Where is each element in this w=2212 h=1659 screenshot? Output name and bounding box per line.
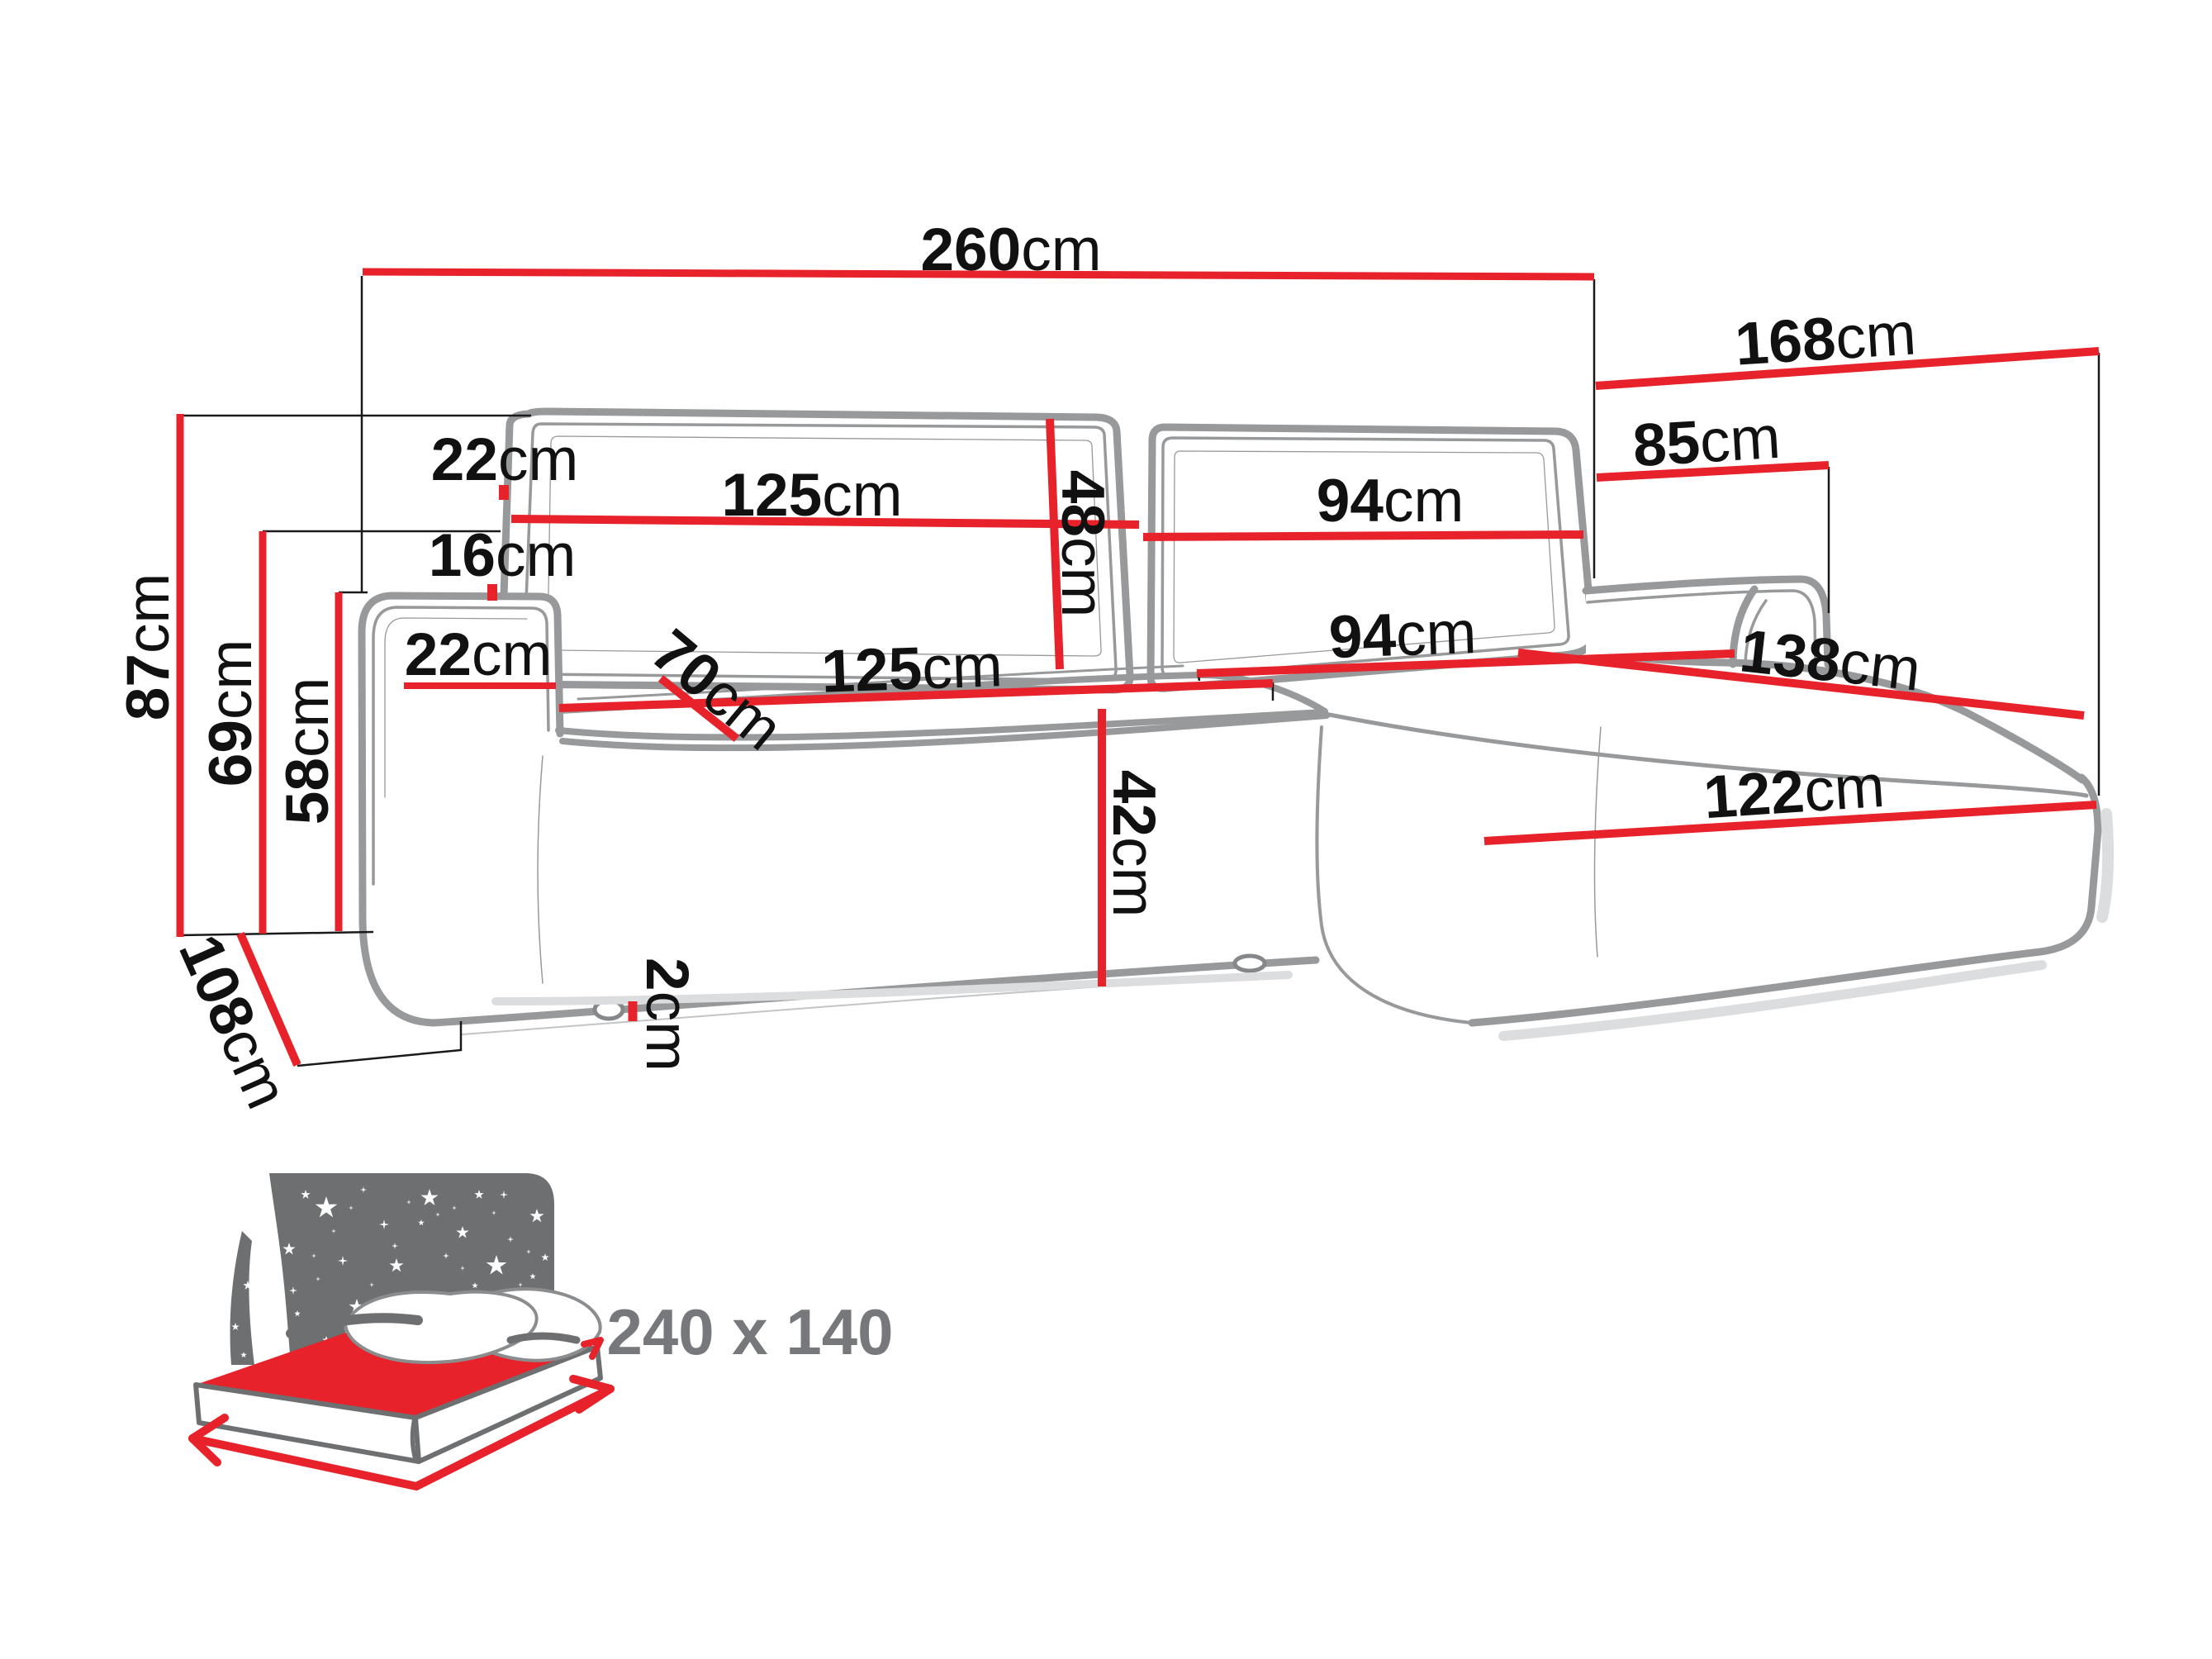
svg-text:22cm: 22cm [431, 426, 579, 493]
svg-text:69cm: 69cm [197, 639, 264, 787]
svg-text:125cm: 125cm [820, 632, 1004, 706]
svg-text:125cm: 125cm [721, 462, 902, 529]
svg-text:240 x 140: 240 x 140 [606, 1295, 893, 1368]
svg-text:16cm: 16cm [429, 522, 577, 589]
svg-text:22cm: 22cm [405, 621, 553, 688]
svg-text:58cm: 58cm [274, 677, 341, 825]
svg-text:260cm: 260cm [920, 216, 1101, 283]
svg-text:85cm: 85cm [1631, 404, 1782, 480]
svg-text:138cm: 138cm [1736, 617, 1924, 704]
svg-text:42cm: 42cm [1100, 770, 1167, 918]
svg-text:122cm: 122cm [1702, 753, 1887, 831]
svg-text:87cm: 87cm [115, 573, 182, 721]
svg-text:168cm: 168cm [1733, 300, 1918, 378]
svg-text:94cm: 94cm [1317, 468, 1464, 535]
svg-text:48cm: 48cm [1049, 470, 1116, 618]
svg-text:94cm: 94cm [1327, 599, 1477, 671]
svg-text:2cm: 2cm [634, 958, 700, 1072]
